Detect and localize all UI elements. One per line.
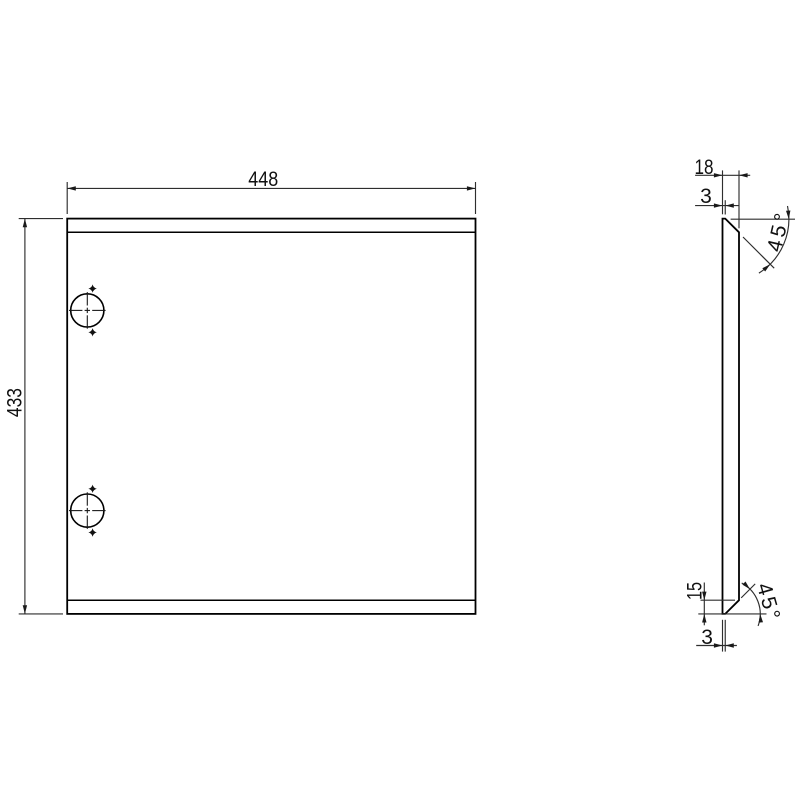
svg-text:448: 448 [248, 168, 278, 191]
svg-text:45°: 45° [752, 580, 784, 622]
svg-text:18: 18 [695, 156, 714, 179]
svg-text:433: 433 [4, 388, 27, 417]
svg-text:15: 15 [683, 582, 706, 600]
svg-text:3: 3 [701, 626, 713, 649]
svg-text:3: 3 [700, 185, 712, 208]
svg-text:45°: 45° [763, 211, 794, 254]
